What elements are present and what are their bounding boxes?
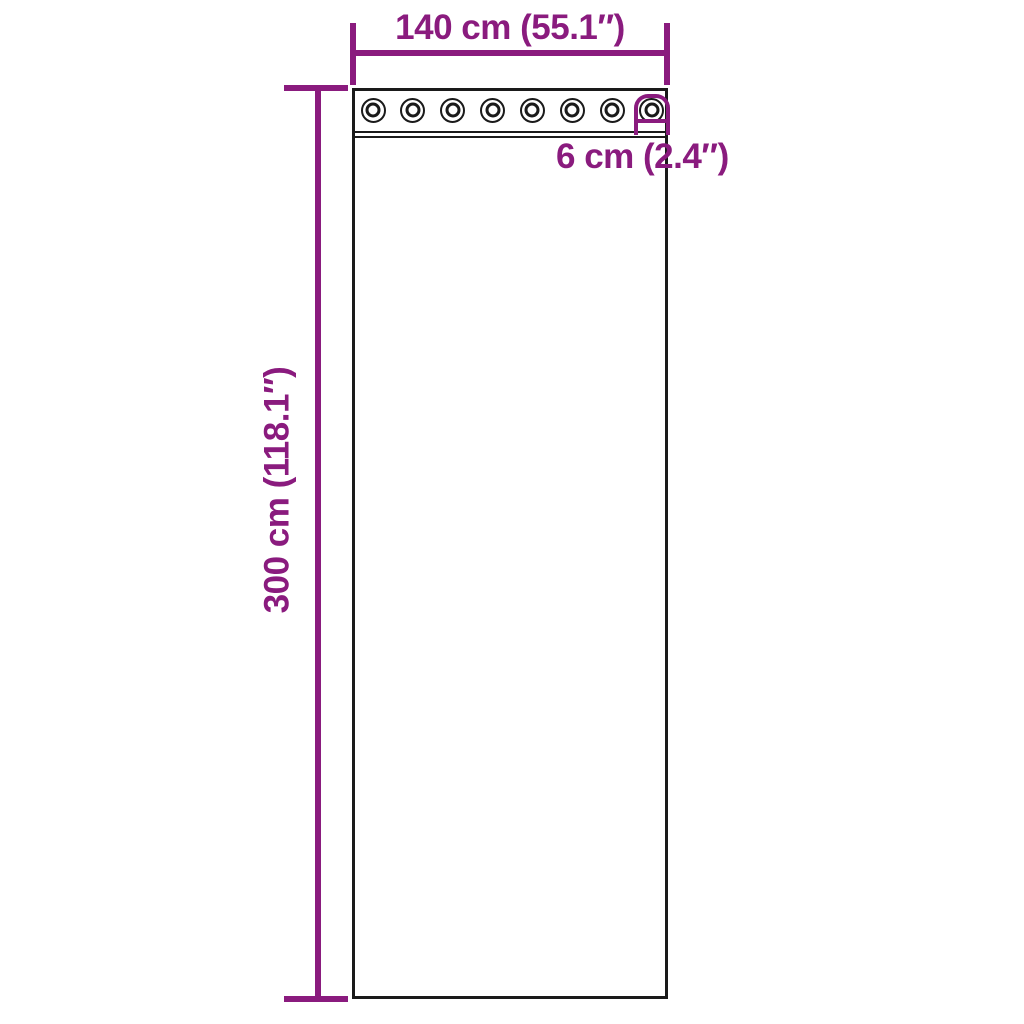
grommet-inner-ring-icon — [366, 103, 381, 118]
grommet-icon — [440, 98, 465, 123]
height-dimension-tick-top — [284, 85, 348, 91]
header-height-bracket — [634, 94, 670, 135]
header-height-label: 6 cm (2.4″) — [556, 139, 729, 174]
grommet-icon — [480, 98, 505, 123]
grommet-inner-ring-icon — [525, 103, 540, 118]
grommet-icon — [520, 98, 545, 123]
grommet-icon — [400, 98, 425, 123]
grommet-icon — [600, 98, 625, 123]
width-dimension-label: 140 cm (55.1″) — [352, 10, 668, 45]
height-dimension-line — [315, 88, 321, 999]
header-height-crossbar-icon — [634, 119, 670, 123]
grommet-inner-ring-icon — [485, 103, 500, 118]
grommet-inner-ring-icon — [445, 103, 460, 118]
width-dimension-tick-right — [664, 23, 670, 85]
width-dimension-tick-left — [350, 23, 356, 85]
height-dimension-tick-bottom — [284, 996, 348, 1002]
width-dimension-line — [352, 50, 668, 56]
grommet-inner-ring-icon — [565, 103, 580, 118]
height-dimension-label: 300 cm (118.1″) — [260, 367, 295, 614]
curtain-panel — [352, 88, 668, 999]
grommet-inner-ring-icon — [405, 103, 420, 118]
grommet-icon — [560, 98, 585, 123]
diagram-canvas: 140 cm (55.1″) 300 cm (118.1″) 6 cm (2.4… — [0, 0, 1024, 1024]
curtain-header-stitch-line-1 — [355, 131, 665, 133]
grommet-inner-ring-icon — [605, 103, 620, 118]
grommet-icon — [361, 98, 386, 123]
